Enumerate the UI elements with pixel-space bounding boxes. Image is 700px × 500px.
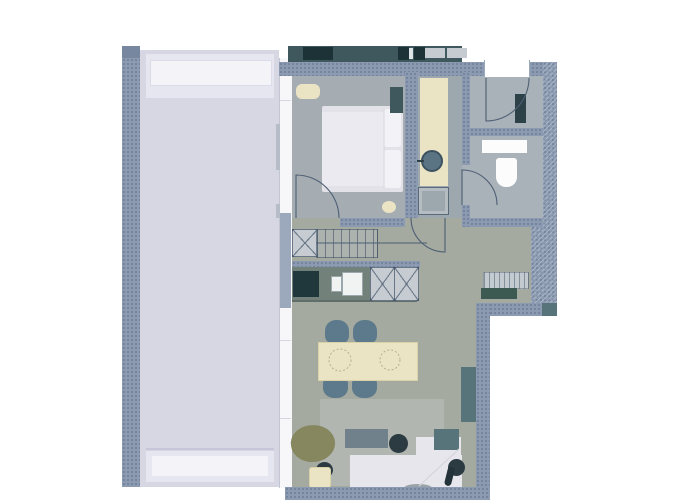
bottom-wall bbox=[285, 487, 490, 500]
terrace-side-wall-cap bbox=[122, 46, 140, 58]
dining-chair-1 bbox=[325, 320, 349, 344]
top-strip-gap bbox=[409, 48, 413, 59]
terrace-joint-line bbox=[146, 448, 274, 450]
bench bbox=[483, 272, 529, 289]
terrace-planter-top bbox=[150, 60, 272, 86]
terrace-planter-bottom bbox=[152, 456, 268, 476]
facade-wall-segment bbox=[280, 213, 291, 308]
tv-table bbox=[434, 429, 459, 450]
right-wall-lower bbox=[476, 303, 490, 489]
facade-divider-3 bbox=[280, 418, 291, 419]
corridor-square-1 bbox=[425, 48, 445, 58]
built-in-closet bbox=[292, 229, 318, 257]
entry-wc-partition bbox=[470, 128, 543, 136]
corridor-square-2 bbox=[447, 48, 467, 58]
terrace-floor bbox=[140, 50, 279, 487]
floor-plan bbox=[0, 0, 700, 500]
tall-cabinet-2 bbox=[394, 267, 419, 301]
coffee-table bbox=[345, 429, 388, 448]
terrace-side-wall bbox=[122, 46, 140, 487]
top-strip-block-3 bbox=[414, 47, 425, 60]
toilet bbox=[496, 158, 517, 187]
lamp-table bbox=[309, 467, 331, 488]
wc-wall-lower bbox=[462, 205, 470, 227]
entrance-door-opening bbox=[484, 60, 530, 77]
corner-block bbox=[542, 303, 557, 316]
facade-divider-1 bbox=[280, 100, 291, 101]
dining-chair-2 bbox=[353, 320, 377, 344]
pouf bbox=[296, 84, 320, 99]
dining-table bbox=[318, 342, 418, 381]
faucet-block bbox=[331, 276, 342, 292]
bench-cushion bbox=[481, 288, 517, 299]
kitchen-sink bbox=[342, 272, 363, 296]
wall-shelf bbox=[482, 140, 527, 153]
wc-wall-upper bbox=[462, 72, 470, 165]
mid-wall-entry bbox=[462, 218, 543, 227]
stairs bbox=[316, 229, 378, 258]
top-strip-block-1 bbox=[303, 47, 333, 60]
bed-pillow-2 bbox=[384, 150, 401, 188]
bedroom-stool bbox=[382, 201, 396, 213]
bed-blanket bbox=[322, 112, 384, 186]
bed-pillow-1 bbox=[384, 109, 401, 147]
shower bbox=[418, 187, 449, 215]
washbasin bbox=[421, 150, 443, 172]
side-table-round-1 bbox=[389, 434, 408, 453]
top-strip-block-2 bbox=[398, 47, 409, 60]
tall-cabinet-1 bbox=[370, 267, 395, 301]
right-wall-upper bbox=[543, 62, 557, 303]
facade-divider-2 bbox=[280, 340, 291, 341]
cooktop bbox=[293, 271, 319, 297]
door-handle-1 bbox=[276, 124, 280, 170]
door-handle-2 bbox=[276, 204, 280, 218]
bedroom-corridor-wall bbox=[405, 72, 418, 218]
right-wall-inner-patch bbox=[531, 222, 543, 303]
sideboard bbox=[461, 367, 476, 422]
wardrobe bbox=[390, 87, 403, 113]
towel-radiator bbox=[515, 94, 526, 123]
mid-wall-bedroom bbox=[340, 218, 405, 227]
